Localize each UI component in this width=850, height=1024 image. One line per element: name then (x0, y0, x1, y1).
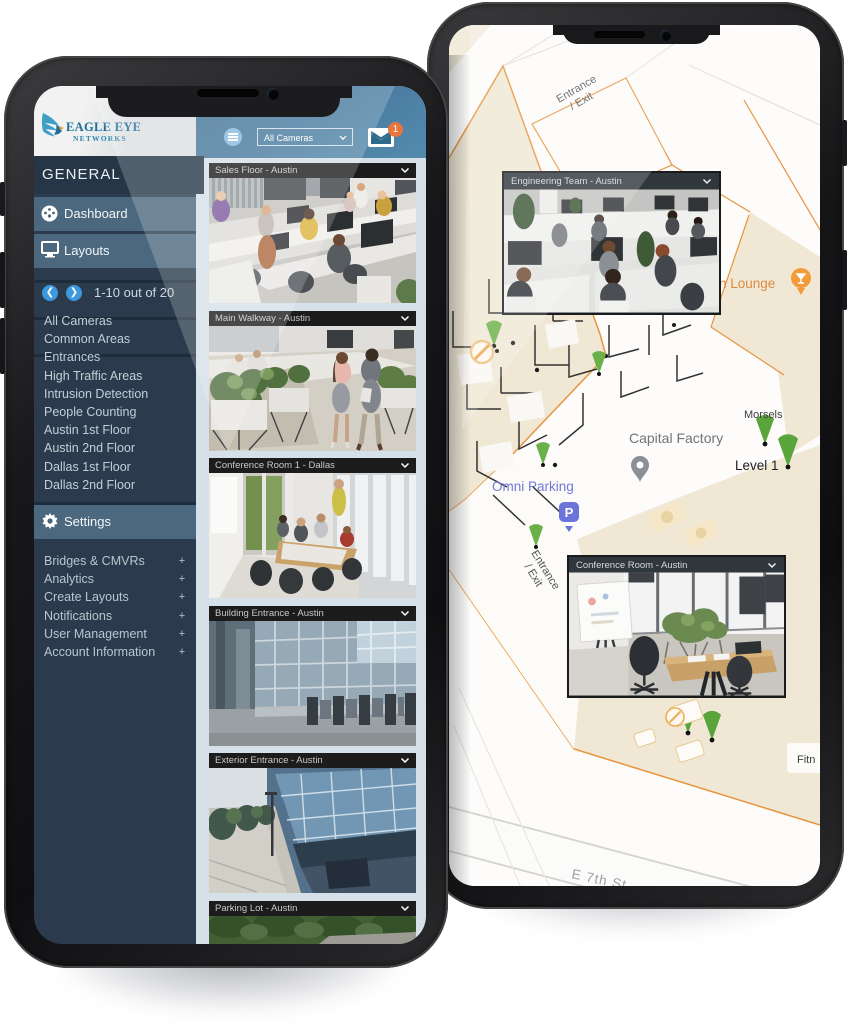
svg-text:P: P (565, 505, 574, 520)
svg-text:Level 1: Level 1 (735, 458, 779, 473)
svg-text:Fitn: Fitn (797, 754, 815, 766)
svg-text:Omni Parking: Omni Parking (492, 479, 574, 494)
svg-text:n Lounge: n Lounge (719, 276, 775, 291)
svg-text:Morsels: Morsels (744, 409, 783, 421)
svg-text:Capital Factory: Capital Factory (629, 430, 723, 446)
